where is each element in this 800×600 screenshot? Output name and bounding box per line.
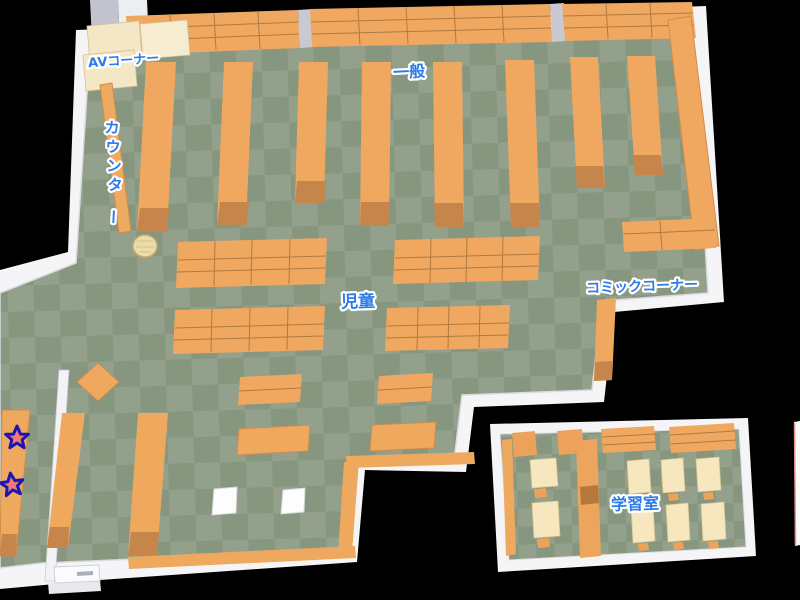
bookshelf xyxy=(176,238,327,288)
bookshelf xyxy=(622,218,716,252)
bookshelf xyxy=(295,62,328,203)
bookshelf xyxy=(393,236,540,284)
white-table xyxy=(212,487,237,515)
bookshelf xyxy=(238,374,302,405)
label-children: 児童 xyxy=(340,290,376,312)
study-desk xyxy=(627,459,651,494)
chair xyxy=(638,543,649,551)
chair xyxy=(537,538,550,548)
wicker-stool xyxy=(133,235,157,257)
bookshelf xyxy=(385,305,510,351)
bookshelf-front xyxy=(594,361,612,381)
bookshelf xyxy=(360,62,391,226)
right-edge-structure xyxy=(794,421,800,546)
floor-map-canvas: AVコーナー 一般 カ ウ ン タ ー 児童 コミックコーナー 学習室 xyxy=(0,0,800,600)
study-desk xyxy=(530,458,558,488)
entrance-door xyxy=(48,565,101,594)
library-floor-map: AVコーナー 一般 カ ウ ン タ ー 児童 コミックコーナー 学習室 xyxy=(0,0,800,600)
bookshelf xyxy=(669,423,736,453)
white-table xyxy=(281,488,305,514)
label-general: 一般 xyxy=(393,61,426,82)
study-desk xyxy=(532,501,560,538)
study-desk xyxy=(666,503,690,542)
bookshelf xyxy=(173,306,325,354)
chair xyxy=(668,493,679,501)
divider-shelf xyxy=(576,439,601,558)
study-desk xyxy=(701,502,726,541)
low-table xyxy=(370,422,436,451)
bookshelf-front xyxy=(0,534,17,556)
bookshelf xyxy=(601,426,656,453)
bookshelf xyxy=(377,373,433,404)
chair xyxy=(673,542,684,550)
chair xyxy=(534,488,547,498)
chair xyxy=(708,541,719,549)
study-desk xyxy=(696,457,721,492)
low-table xyxy=(237,425,310,455)
bookshelf xyxy=(310,4,552,47)
chair xyxy=(512,431,537,457)
bookshelf xyxy=(433,62,464,227)
study-desk xyxy=(661,458,685,493)
bookshelf xyxy=(505,60,540,227)
chair xyxy=(703,492,714,500)
label-study-room: 学習室 xyxy=(611,494,660,515)
